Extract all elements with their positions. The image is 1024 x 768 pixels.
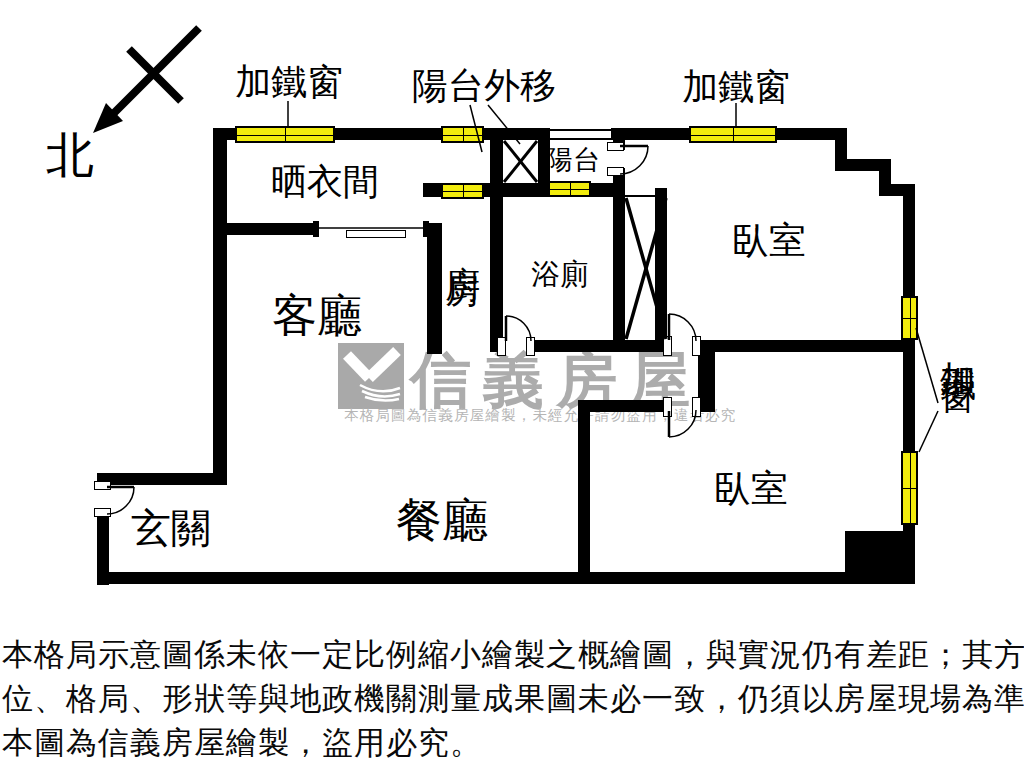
wall-right-seg2 <box>903 340 915 451</box>
wall-top-seg4 <box>611 128 691 140</box>
balcony-outer-edge <box>548 129 613 140</box>
disclaimer-line2: 位、格局、形狀等與地政機關測量成果圖未必一致，仍須以房屋現場為準。 <box>2 678 1024 720</box>
wall-b-seg1 <box>578 400 668 412</box>
wall-bedroom2-left <box>578 400 590 578</box>
north-arrow <box>93 28 199 133</box>
room-label-drying: 晒衣間 <box>271 163 379 201</box>
entry-door <box>107 487 134 514</box>
window-top-left <box>235 126 335 143</box>
bedroom2-door-jamb <box>692 397 701 417</box>
balcony-door-jamb <box>607 142 624 151</box>
window-right-upper <box>901 296 918 340</box>
wall-bottom <box>97 572 915 584</box>
annotation-balcony-moved-out: 陽台外移 <box>412 67 556 105</box>
window-divider <box>463 185 464 197</box>
entry-door-jamb <box>94 481 111 490</box>
window-bathroom-balcony <box>548 181 591 197</box>
wall-a-seg3 <box>695 340 907 352</box>
sinyi-logo-square <box>338 343 404 409</box>
disclaimer-line1: 本格局示意圖係未依一定比例縮小繪製之概繪圖，與實況仍有差距；其方 <box>2 634 1024 676</box>
bedroom1-door-jamb <box>692 336 701 356</box>
annotation-iron-window-top-right: 加鐵窗 <box>682 68 790 106</box>
room-label-bathroom: 浴廁 <box>531 259 589 289</box>
room-label-balcony: 陽台 <box>546 146 600 174</box>
room-label-bedroom-top: 臥室 <box>732 222 806 261</box>
wall-kitchen-left <box>427 223 442 354</box>
wall-drying-bottom <box>213 223 318 235</box>
disclaimer-line3: 本圖為信義房屋繪製，盜用必究。 <box>2 722 482 764</box>
bedroom2-door-jamb <box>663 397 672 417</box>
floor-plan-canvas: 信義房屋 本格局圖為信義房屋繪製，未經允許請勿盜用，違者必究 <box>0 0 1024 768</box>
room-label-kitchen: 廚房 <box>444 237 481 247</box>
annotation-iron-window-top-left: 加鐵窗 <box>235 63 343 101</box>
room-label-living: 客廳 <box>272 292 362 339</box>
balcony-door-jamb <box>607 167 624 176</box>
wall-kitchen-window-stub <box>423 183 441 197</box>
sliding-door-panel <box>346 230 406 238</box>
wall-left <box>213 128 227 485</box>
wall-shaft2-right <box>655 188 667 352</box>
wall-kitchen-right-bar <box>490 138 503 352</box>
bathroom-door-jamb <box>526 337 535 356</box>
shaft-upper-x <box>504 141 537 182</box>
window-divider <box>570 183 571 195</box>
bathroom-door-jamb <box>497 337 506 356</box>
slider-cap-left <box>313 221 319 237</box>
watermark-notice: 本格局圖為信義房屋繪製，未經允許請勿盜用，違者必究 <box>344 406 737 425</box>
window-kitchen <box>441 183 484 199</box>
wall-bath-top-stub2 <box>590 183 613 197</box>
wall-bath-top-stub1 <box>503 183 548 197</box>
wall-right-seg1 <box>903 184 915 296</box>
wall-entry-top <box>97 473 227 485</box>
window-divider <box>910 298 911 338</box>
annotation-iron-window-right: 加鐵窗 <box>939 332 977 353</box>
corner-column <box>845 531 915 584</box>
room-label-entry: 玄關 <box>131 507 211 549</box>
room-label-dining: 餐廳 <box>396 496 488 544</box>
wall-bath-right <box>613 168 625 352</box>
wall-a-seg2 <box>526 340 668 352</box>
north-label: 北 <box>46 130 94 180</box>
window-right-lower <box>901 451 918 525</box>
bedroom1-door-jamb <box>663 336 672 356</box>
entry-door-jamb <box>94 508 111 517</box>
wall-top-seg2 <box>333 128 443 140</box>
room-label-bedroom-bottom: 臥室 <box>714 470 788 509</box>
window-top-small-upper <box>441 126 484 143</box>
window-top-right <box>689 126 777 143</box>
window-divider <box>733 128 734 141</box>
window-divider <box>285 128 286 141</box>
window-divider <box>463 128 464 141</box>
window-divider <box>910 453 911 523</box>
